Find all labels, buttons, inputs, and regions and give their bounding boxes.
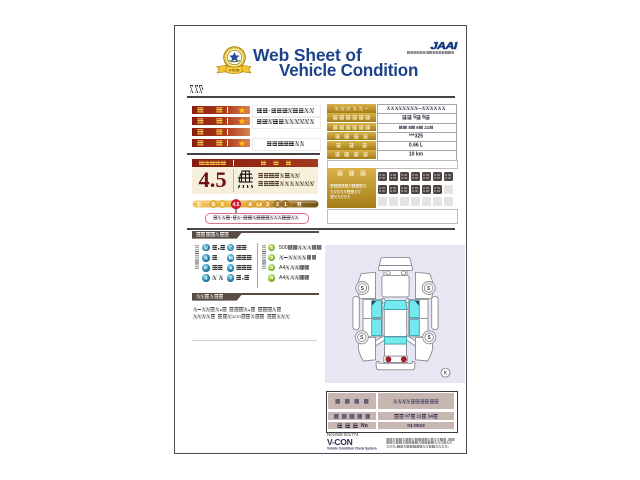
svg-text:3: 3 (266, 202, 269, 208)
svg-text:4: 4 (249, 202, 252, 208)
svg-text:1: 1 (284, 202, 287, 208)
svg-text:S: S (197, 202, 201, 208)
svg-text:5: 5 (221, 202, 224, 208)
svg-text:R: R (297, 202, 302, 208)
svg-text:2: 2 (276, 202, 279, 208)
svg-text:6: 6 (212, 202, 215, 208)
svg-text:4.5: 4.5 (233, 202, 240, 208)
svg-text:V-CON: V-CON (229, 69, 240, 73)
svg-text:K: K (444, 371, 448, 377)
svg-text:3.5: 3.5 (256, 202, 262, 207)
